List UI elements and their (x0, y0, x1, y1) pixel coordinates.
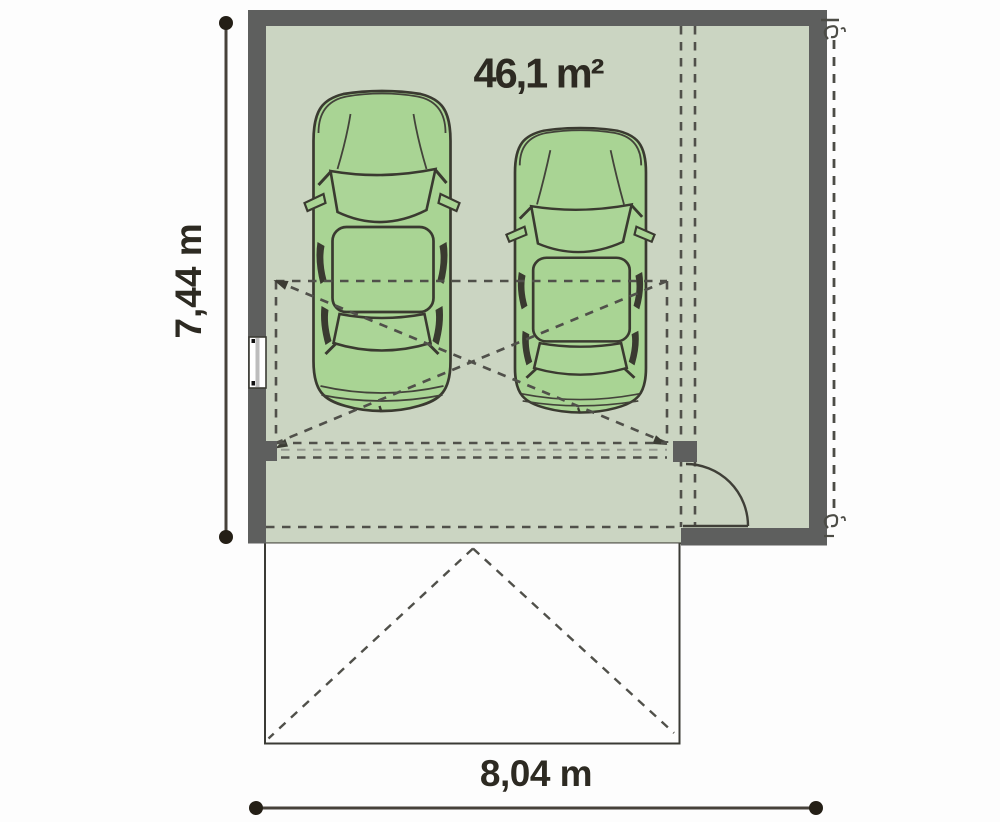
svg-text:46,1 m²: 46,1 m² (473, 50, 603, 97)
svg-text:8,04 m: 8,04 m (480, 753, 592, 794)
svg-text:7,44 m: 7,44 m (168, 223, 209, 338)
